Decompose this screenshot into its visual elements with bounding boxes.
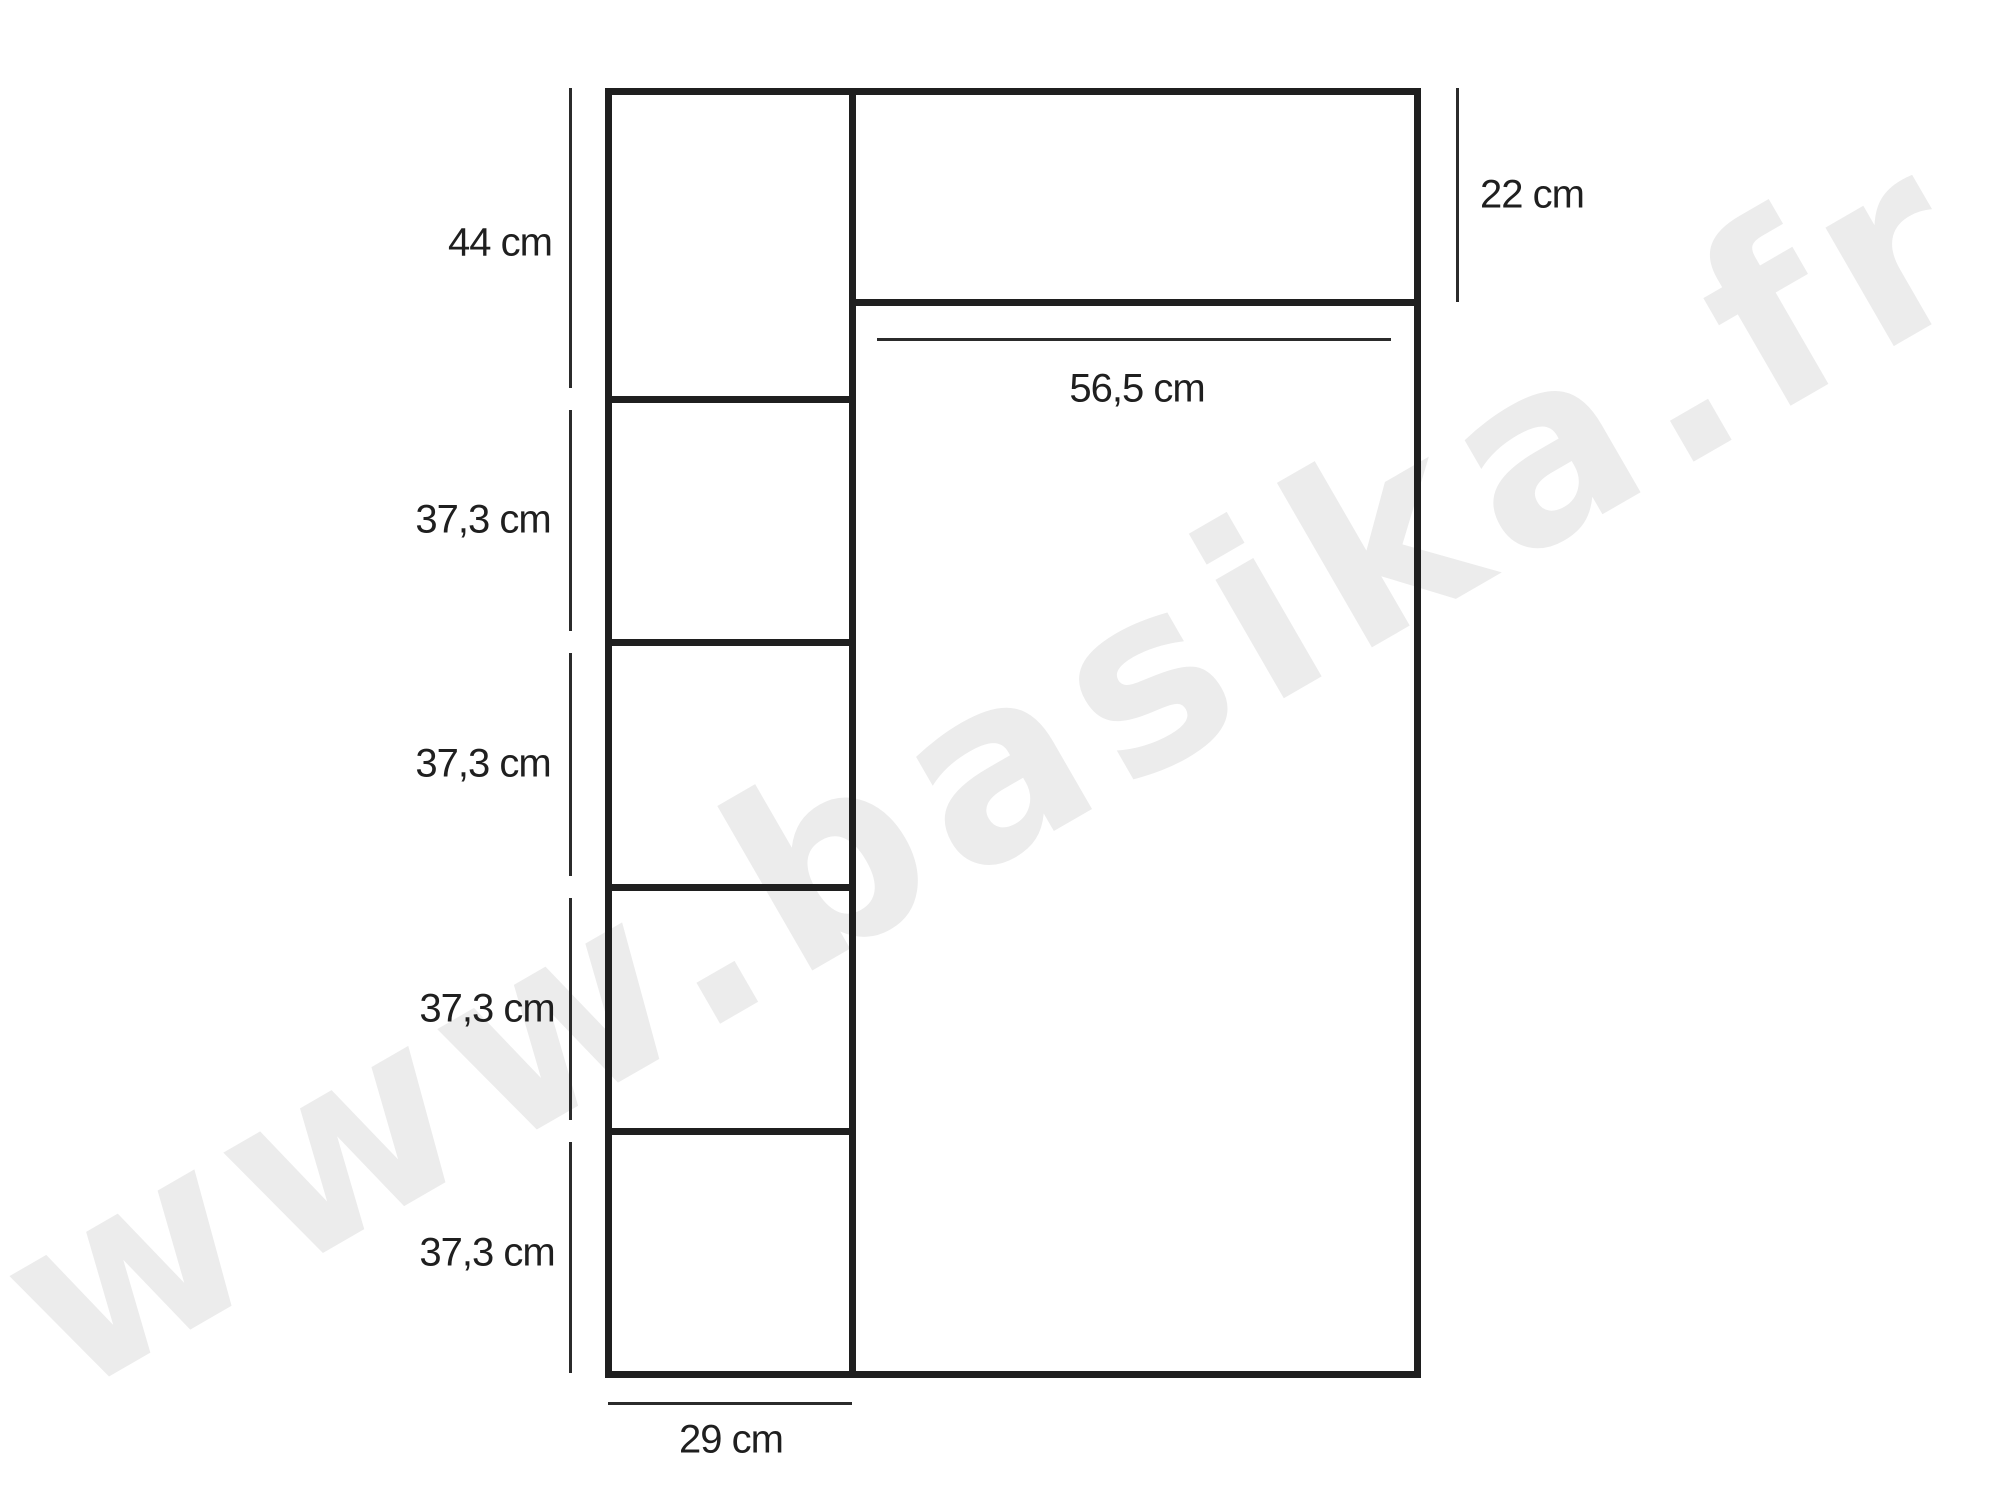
dimension-label-56-5cm: 56,5 cm: [1069, 367, 1204, 412]
watermark-text: www.basika.fr: [0, 86, 2000, 1450]
cabinet-column-divider: [849, 88, 856, 1378]
dim-line-height-22cm: [1456, 88, 1459, 302]
shelf-line-3: [605, 884, 856, 891]
dimension-label-37-3cm-3: 37,3 cm: [419, 987, 554, 1032]
cabinet-outline-left: [605, 88, 612, 1378]
dim-line-height-37-3cm-1: [569, 410, 572, 631]
shelf-line-2: [605, 639, 856, 646]
shelf-line-1: [605, 396, 856, 403]
dimension-label-29cm: 29 cm: [679, 1418, 783, 1463]
furniture-dimension-diagram: www.basika.fr 44 cm 37,3 cm 37,3 cm 37,3…: [0, 0, 2000, 1500]
dimension-label-37-3cm-1: 37,3 cm: [415, 498, 550, 543]
dim-line-height-44cm: [569, 88, 572, 388]
shelf-line-4: [605, 1128, 856, 1135]
dim-line-height-37-3cm-3: [569, 898, 572, 1120]
dim-line-width-29cm: [608, 1402, 852, 1405]
cabinet-outline-bottom: [605, 1371, 1421, 1378]
dimension-label-44cm: 44 cm: [448, 221, 552, 266]
top-drawer-bottom-line: [849, 299, 1421, 306]
dimension-label-22cm: 22 cm: [1480, 173, 1584, 218]
dim-line-height-37-3cm-4: [569, 1142, 572, 1373]
dim-line-width-56-5cm: [877, 338, 1391, 341]
dim-line-height-37-3cm-2: [569, 653, 572, 876]
dimension-label-37-3cm-2: 37,3 cm: [415, 742, 550, 787]
cabinet-outline-top: [605, 88, 1421, 95]
dimension-label-37-3cm-4: 37,3 cm: [419, 1231, 554, 1276]
cabinet-outline-right: [1414, 88, 1421, 1378]
